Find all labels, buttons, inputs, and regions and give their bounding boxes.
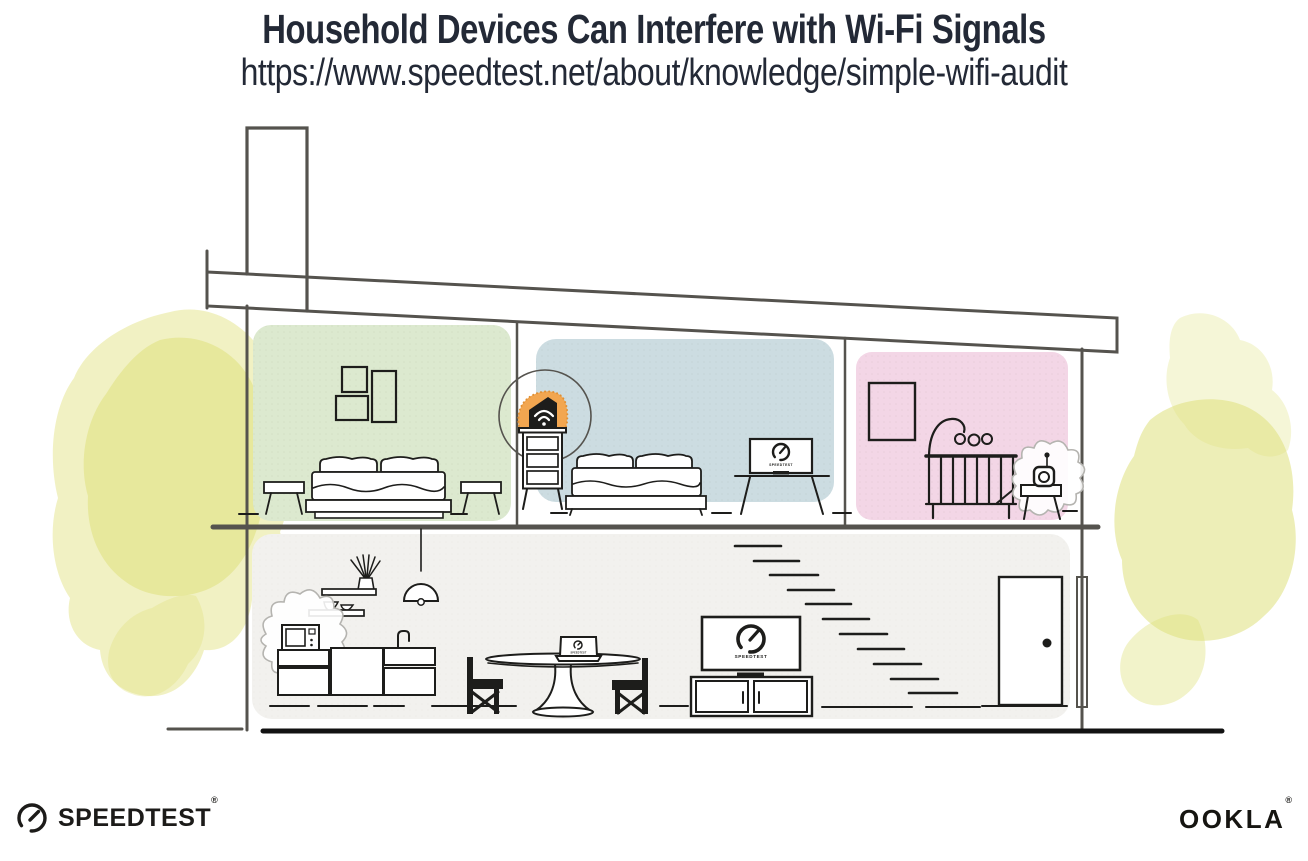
dresser [519,428,566,509]
laptop-base [556,656,601,661]
bulb [418,599,424,605]
foliage-right [1114,313,1295,705]
chimney [247,126,307,311]
console-door [696,681,748,712]
bedroom-tv-label: SPEEDTEST [769,463,793,467]
bed-base [566,496,706,509]
registered-mark: ® [211,795,218,805]
tv-stand [773,471,789,475]
console-door [754,681,807,712]
mattress [312,472,445,500]
cabinet [384,668,435,695]
drawer [527,454,558,467]
registered-mark: ® [1285,795,1292,805]
sink-cabinet [384,648,435,665]
bed [566,454,706,515]
cabinet [278,668,329,695]
pillow [636,454,692,468]
shelf [322,589,376,595]
media-console [691,677,812,716]
laptop-label: SPEEDTEST [570,652,586,655]
pillow [577,454,633,468]
gauge-icon [14,800,50,836]
drawer [527,471,558,484]
ookla-logo: OOKLA® [1179,804,1292,835]
entry-door [999,577,1062,705]
living-room-tv-label: SPEEDTEST [735,654,768,659]
cabinet [331,648,383,695]
laptop: SPEEDTEST [556,637,601,661]
microwave-window [286,629,305,646]
speedtest-logo: SPEEDTEST® [14,800,218,836]
floor-shadow-lines [270,706,1067,707]
pillow [381,457,438,472]
door-knob [1043,639,1052,648]
house-cutaway-illustration: SPEEDTEST [0,0,1308,861]
ookla-wordmark: OOKLA [1179,804,1285,835]
table-base [533,708,593,717]
bed-base [306,500,451,512]
living-room-tv: SPEEDTEST [702,617,800,677]
speedtest-wordmark: SPEEDTEST [58,804,211,832]
drawer [527,437,558,450]
pillow [320,457,377,472]
microwave [282,625,319,650]
mattress [572,468,701,496]
infographic-page: Household Devices Can Interfere with Wi-… [0,0,1308,861]
cabinet [278,650,329,666]
